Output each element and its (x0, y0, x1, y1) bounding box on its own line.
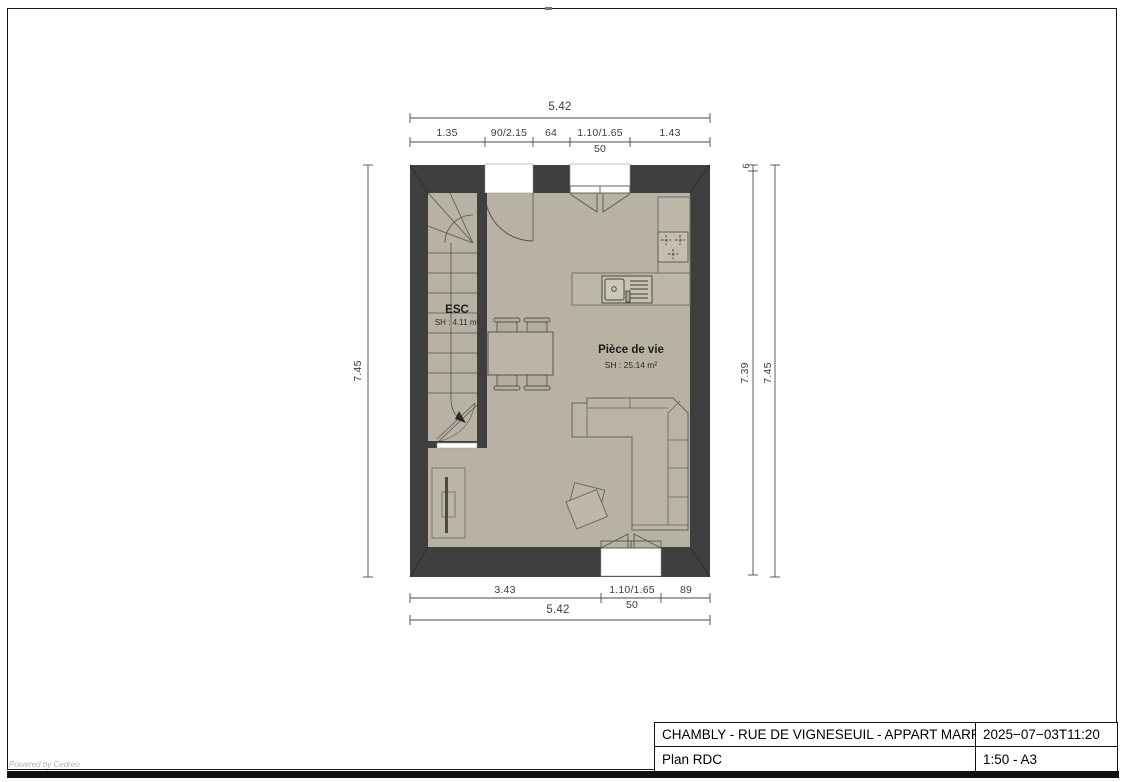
title-block-scale: 1:50 - A3 (976, 747, 1117, 771)
dim-right-inner: 7.39 (739, 362, 751, 383)
floor-plan-page: 5.42 1.35 90/2.15 64 1.10/1.65 1.43 50 3… (0, 0, 1126, 782)
dim-bottom-seg-1: 3.43 (494, 584, 515, 596)
dim-left-total: 7.45 (352, 360, 364, 381)
page-bottom-border (7, 771, 1119, 778)
title-block-project: CHAMBLY - RUE DE VIGNESEUIL - APPART MAR… (655, 723, 976, 747)
dim-top-seg-1: 1.35 (436, 127, 457, 139)
powered-by-cedreo: Powered by Cedreo (9, 760, 80, 769)
dim-bottom-total: 5.42 (546, 604, 569, 616)
dim-top-total: 5.42 (548, 101, 571, 113)
dim-top-seg-5: 1.43 (659, 127, 680, 139)
sink-symbol (602, 276, 652, 303)
staircase-label: ESC (445, 304, 469, 316)
dim-right-top-offset: 6 (741, 163, 751, 168)
staircase-area: SH : 4.11 m² (435, 318, 479, 327)
title-block-date: 2025−07−03T11:20 (976, 723, 1117, 747)
dim-top-sub: 50 (594, 143, 606, 155)
dim-top-seg-3: 64 (545, 127, 557, 139)
dim-top-seg-2: 90/2.15 (491, 127, 527, 139)
dim-bottom-sub: 50 (626, 599, 638, 611)
cooktop-symbol (658, 232, 688, 262)
dim-bottom-seg-3: 89 (680, 584, 692, 596)
dim-bottom-seg-2: 1.10/1.65 (609, 584, 655, 596)
floor-plan-drawing (0, 0, 1126, 782)
dim-top-seg-4: 1.10/1.65 (577, 127, 623, 139)
living-room-area: SH : 25.14 m² (605, 360, 657, 370)
dim-right-outer: 7.45 (762, 362, 774, 383)
living-room-label: Pièce de vie (598, 344, 664, 356)
tv-unit-symbol (432, 468, 465, 538)
title-block: CHAMBLY - RUE DE VIGNESEUIL - APPART MAR… (654, 722, 1118, 772)
title-block-plan-name: Plan RDC (655, 747, 976, 771)
